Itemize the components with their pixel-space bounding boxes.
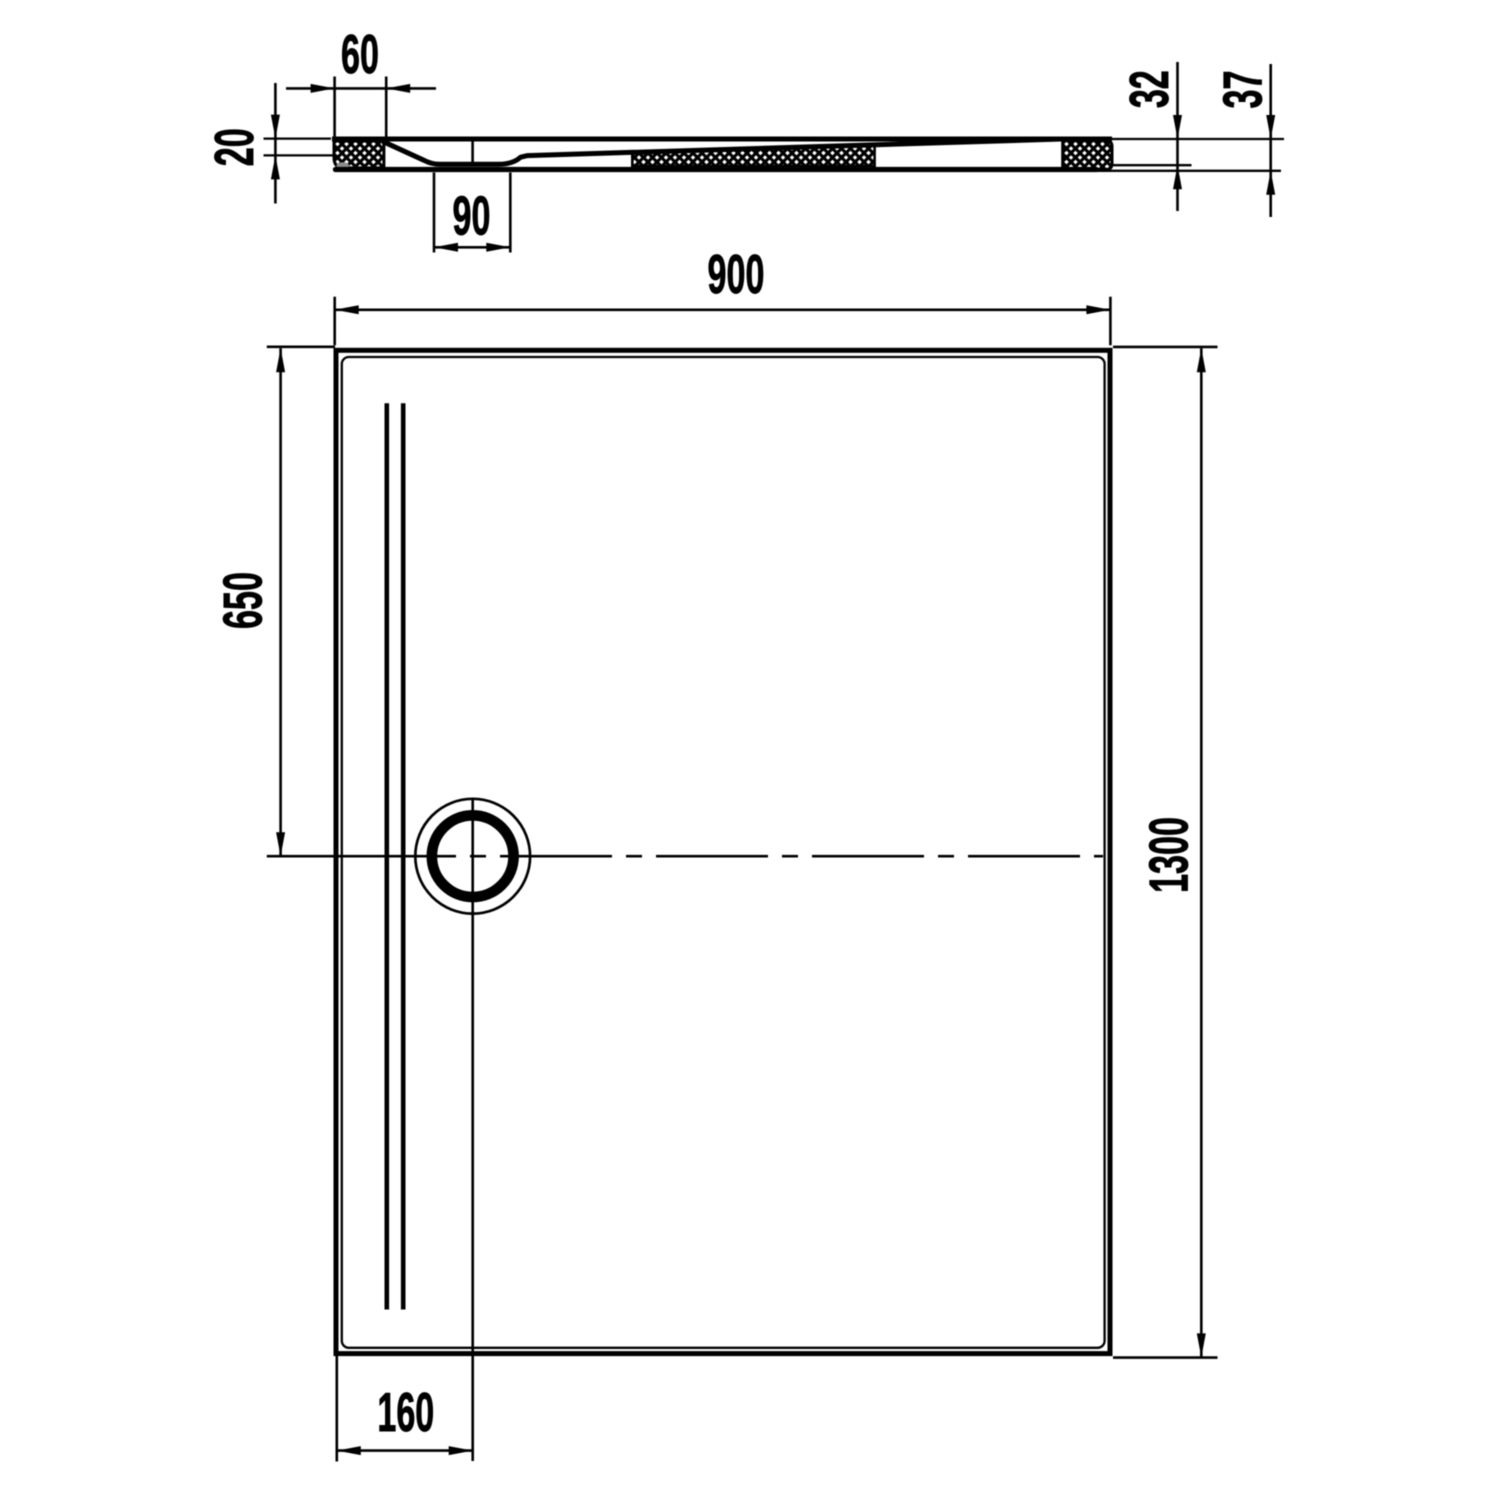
svg-text:37: 37 [1212,71,1273,109]
svg-text:900: 900 [708,244,765,305]
svg-text:160: 160 [377,1382,434,1443]
svg-text:32: 32 [1119,70,1180,108]
svg-text:1300: 1300 [1138,817,1199,893]
svg-text:20: 20 [204,128,265,166]
svg-text:60: 60 [341,24,379,85]
svg-text:650: 650 [212,572,273,629]
svg-text:90: 90 [453,185,491,246]
